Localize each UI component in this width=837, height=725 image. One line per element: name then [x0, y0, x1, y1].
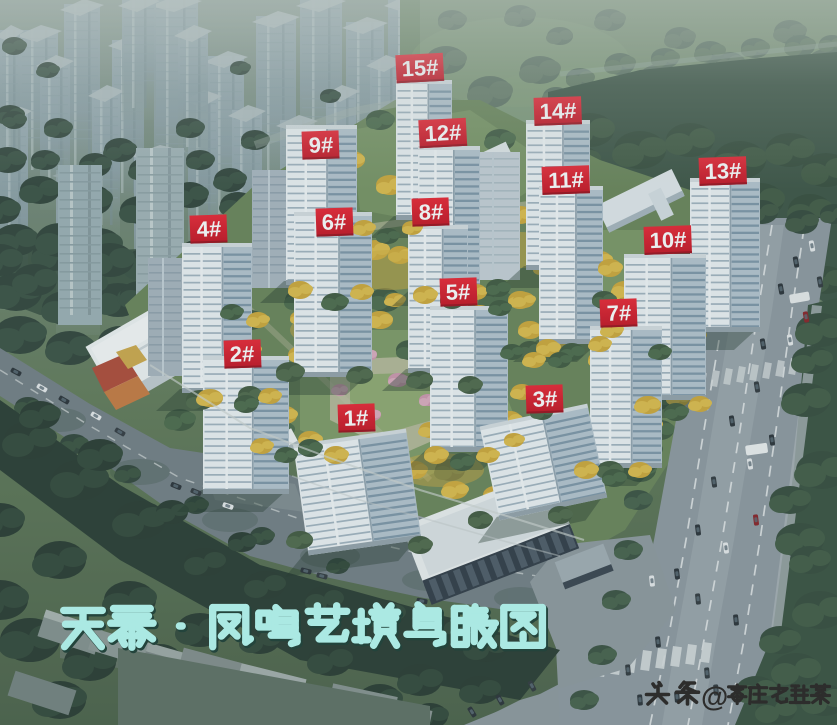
svg-text:@: @ — [701, 681, 728, 712]
